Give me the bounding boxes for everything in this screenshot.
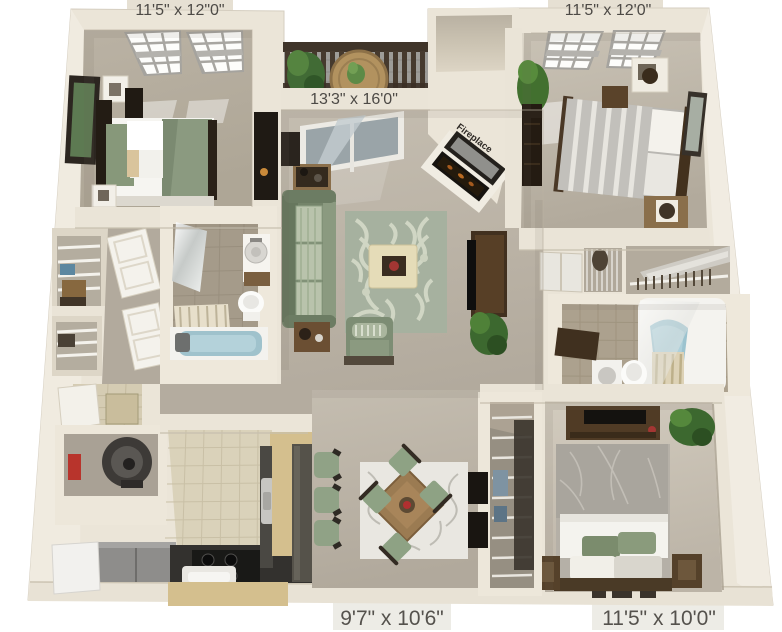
svg-text:13'3" x 16'0": 13'3" x 16'0" xyxy=(310,91,398,108)
svg-text:9'7" x 10'6": 9'7" x 10'6" xyxy=(340,607,444,630)
svg-text:11'5" x 12"0": 11'5" x 12"0" xyxy=(135,2,224,19)
svg-text:11'5" x 12'0": 11'5" x 12'0" xyxy=(565,2,652,19)
svg-text:11'5" x 10'0": 11'5" x 10'0" xyxy=(602,607,716,630)
